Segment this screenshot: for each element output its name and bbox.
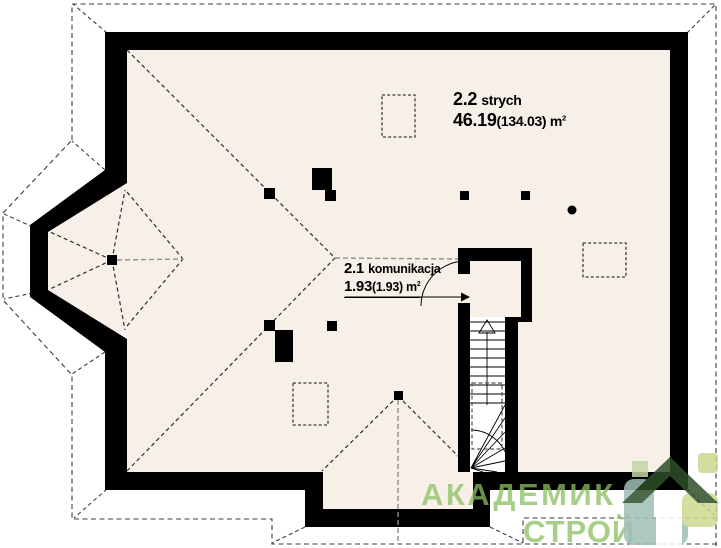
room-name: strych: [481, 92, 521, 108]
room-name: komunikacja: [368, 262, 440, 276]
room-area: 1.93: [344, 278, 372, 295]
room-area-unit: m2: [403, 280, 421, 294]
room-area-secondary: (1.93): [372, 280, 403, 294]
room-number: 2.1: [344, 260, 364, 277]
room-number: 2.2: [453, 89, 477, 109]
watermark-text-line2: СТРОЙ: [523, 514, 635, 548]
logo-house-icon: [620, 441, 720, 547]
floor-plan-page: 2.2 strych 46.19(134.03) m2 2.1 komunika…: [0, 0, 721, 548]
room-area: 46.19: [453, 110, 497, 130]
room-area-secondary: (134.03): [497, 113, 547, 129]
watermark-text-line1: АКАДЕМИК: [421, 477, 616, 513]
room-area-unit: m2: [546, 113, 566, 129]
room-label-strych: 2.2 strych 46.19(134.03) m2: [453, 90, 566, 131]
room-label-komunikacja: 2.1 komunikacja 1.93(1.93) m2: [344, 261, 441, 298]
